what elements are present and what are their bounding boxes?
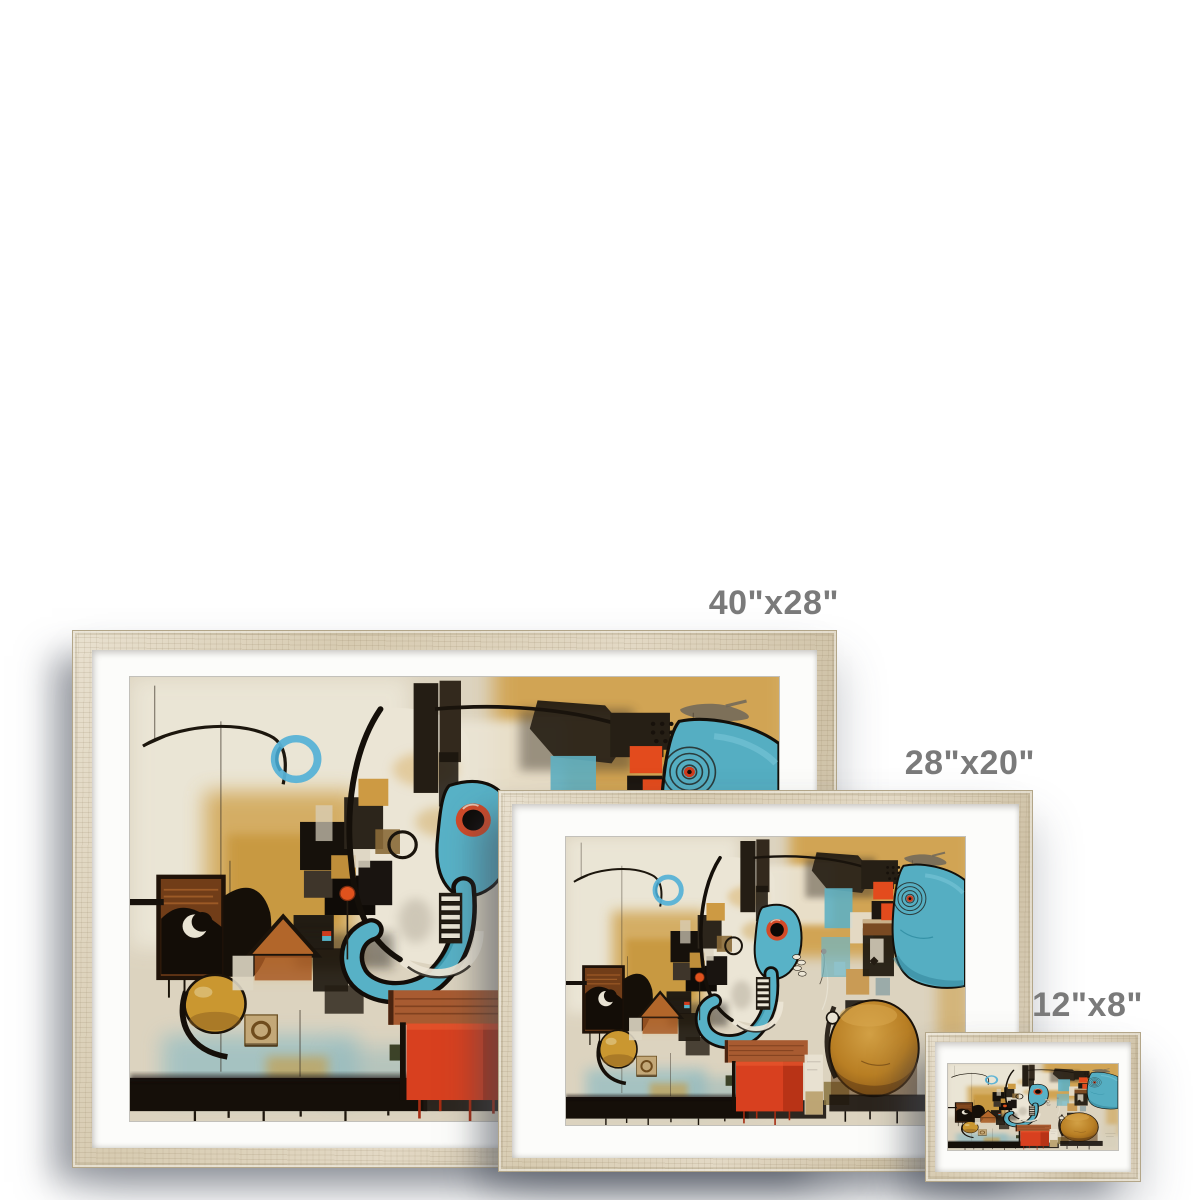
size-label-large: 40"x28"	[709, 584, 839, 623]
mat-opening-small	[948, 1064, 1118, 1150]
size-label-medium: 28"x20"	[905, 744, 1035, 783]
mat-opening-medium	[566, 837, 965, 1125]
abstract-elephant-artwork-medium	[566, 837, 965, 1125]
size-label-small: 12"x8"	[1032, 986, 1143, 1025]
print-size-comparison: 40"x28" 28"x20" 12"x8"	[0, 0, 1200, 1200]
abstract-elephant-artwork-small	[948, 1064, 1118, 1150]
mat-small	[935, 1042, 1131, 1172]
framed-print-small: 12"x8"	[925, 1032, 1141, 1182]
